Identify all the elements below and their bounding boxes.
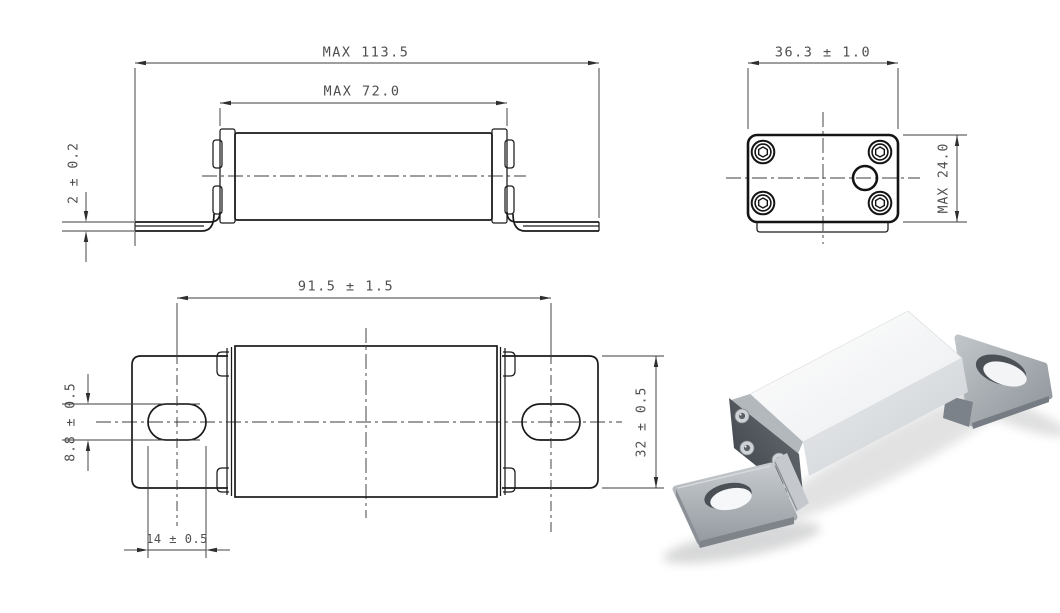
- dim-end-width-text: 36.3 ± 1.0: [775, 45, 871, 61]
- front-view: MAX 113.5 MAX 72.0 2 ± 0.2: [62, 45, 599, 262]
- screw-icon: [752, 192, 775, 215]
- screw-icon: [869, 141, 892, 164]
- front-terminal-bump: [505, 186, 514, 214]
- end-bracket-tab: [757, 222, 888, 232]
- dim-bracket-width-text: 32 ± 0.5: [635, 387, 650, 458]
- front-right-bracket: [507, 212, 599, 231]
- iso-render: [661, 311, 1060, 572]
- technical-drawing-page: MAX 113.5 MAX 72.0 2 ± 0.2: [0, 0, 1060, 613]
- front-fuse-body: [235, 133, 492, 220]
- dim-bracket-thickness-text: 2 ± 0.2: [67, 142, 82, 204]
- dim-end-height-text: MAX 24.0: [937, 143, 952, 214]
- top-view: 91.5 ± 1.5 8.8 ± 0.5 32 ± 0.5: [62, 279, 664, 558]
- dim-slot-length-text: 14 ± 0.5: [146, 532, 208, 546]
- screw-icon: [752, 141, 775, 164]
- dim-slot-width: 8.8 ± 0.5: [62, 374, 200, 471]
- front-left-bracket: [135, 212, 220, 231]
- front-terminal-bump: [213, 186, 222, 214]
- dim-body-length: MAX 72.0: [220, 84, 507, 126]
- end-view: 36.3 ± 1.0 MAX 24.0: [726, 45, 967, 244]
- screw-icon: [869, 192, 892, 215]
- dim-body-length-text: MAX 72.0: [323, 84, 400, 100]
- dim-overall-length-text: MAX 113.5: [323, 45, 410, 61]
- dim-overall-length: MAX 113.5: [135, 45, 599, 246]
- dim-bracket-thickness: 2 ± 0.2: [62, 142, 134, 262]
- dim-hole-pitch: 91.5 ± 1.5: [177, 279, 551, 300]
- dim-hole-pitch-text: 91.5 ± 1.5: [298, 279, 394, 295]
- front-terminal-bump: [213, 140, 222, 168]
- front-terminal-bump: [505, 140, 514, 168]
- dim-slot-width-text: 8.8 ± 0.5: [64, 382, 79, 461]
- dim-end-height: MAX 24.0: [903, 135, 967, 222]
